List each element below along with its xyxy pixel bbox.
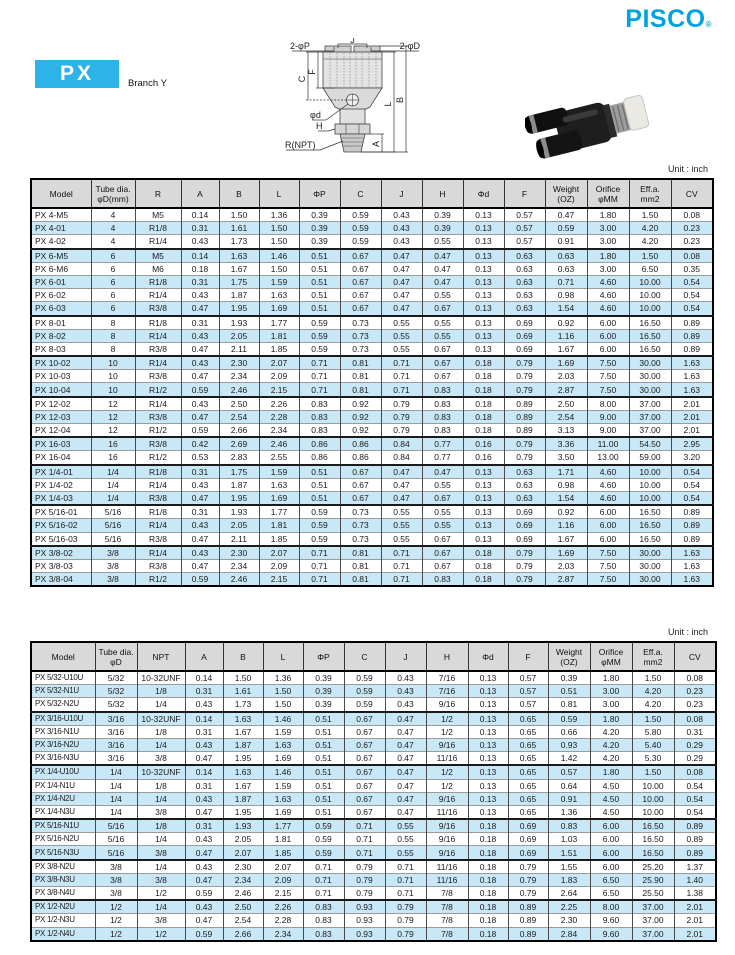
value-cell: 0.89 (508, 914, 548, 927)
value-cell: R1/4 (135, 289, 181, 302)
value-cell: 2.26 (259, 397, 299, 411)
value-cell: 0.43 (181, 356, 219, 370)
value-cell: 0.71 (381, 573, 422, 587)
value-cell: 0.59 (303, 819, 344, 833)
value-cell: 4 (91, 235, 135, 249)
value-cell: 0.13 (463, 208, 504, 222)
value-cell: 0.65 (508, 712, 548, 726)
value-cell: 0.69 (508, 846, 548, 860)
value-cell: 3.00 (590, 685, 632, 698)
value-cell: 0.67 (340, 289, 381, 302)
value-cell: 1.50 (263, 685, 303, 698)
value-cell: 0.67 (344, 725, 385, 738)
value-cell: 10 (91, 356, 135, 370)
table-row: PX 5/16-N2U5/161/40.432.051.810.590.710.… (31, 833, 716, 846)
table-row: PX 12-0312R3/80.472.542.280.830.920.790.… (31, 410, 713, 423)
value-cell: 1/4 (95, 765, 137, 779)
value-cell: 3/8 (137, 873, 185, 886)
column-header: Model (31, 642, 95, 671)
table-row: PX 3/16-U10U3/1610-32UNF0.141.631.460.51… (31, 712, 716, 726)
value-cell: 10.00 (632, 792, 674, 805)
value-cell: 0.63 (504, 478, 545, 491)
value-cell: R3/8 (135, 302, 181, 316)
table-row: PX 3/8-043/8R1/20.592.462.150.710.810.71… (31, 573, 713, 587)
value-cell: 0.51 (303, 725, 344, 738)
value-cell: 0.81 (340, 573, 381, 587)
value-cell: 0.55 (422, 519, 463, 532)
value-cell: 0.47 (385, 805, 426, 819)
value-cell: 3.50 (545, 451, 587, 465)
value-cell: 5/16 (95, 819, 137, 833)
value-cell: 3/8 (91, 559, 135, 572)
value-cell: 7.50 (587, 559, 629, 572)
value-cell: 0.51 (299, 275, 340, 288)
value-cell: 30.00 (629, 559, 671, 572)
value-cell: 6 (91, 262, 135, 275)
value-cell: 1.69 (545, 356, 587, 370)
model-cell: PX 6-02 (31, 289, 91, 302)
value-cell: 0.57 (504, 222, 545, 235)
value-cell: R1/4 (135, 519, 181, 532)
value-cell: 1.37 (674, 860, 716, 874)
value-cell: 1/4 (137, 833, 185, 846)
value-cell: 9/16 (426, 792, 468, 805)
value-cell: 0.69 (504, 316, 545, 330)
value-cell: 10.00 (629, 478, 671, 491)
value-cell: 6.00 (587, 316, 629, 330)
value-cell: 1.93 (219, 316, 259, 330)
value-cell: 0.55 (422, 316, 463, 330)
value-cell: 0.13 (468, 738, 508, 751)
model-cell: PX 12-02 (31, 397, 91, 411)
value-cell: 0.59 (299, 519, 340, 532)
value-cell: 0.43 (185, 860, 223, 874)
model-cell: PX 12-04 (31, 424, 91, 438)
value-cell: 25.50 (632, 887, 674, 901)
value-cell: 0.71 (545, 275, 587, 288)
series-name: Branch Y (128, 78, 167, 89)
value-cell: 9/16 (426, 846, 468, 860)
value-cell: 0.51 (299, 289, 340, 302)
value-cell: 0.31 (181, 505, 219, 519)
value-cell: 0.71 (299, 573, 340, 587)
value-cell: 0.65 (508, 725, 548, 738)
value-cell: 0.18 (463, 559, 504, 572)
value-cell: 3/16 (95, 738, 137, 751)
value-cell: 10.00 (629, 275, 671, 288)
value-cell: 0.08 (674, 765, 716, 779)
unit-label: Unit : inch (500, 627, 708, 637)
value-cell: 0.84 (381, 437, 422, 451)
value-cell: 0.51 (303, 779, 344, 792)
value-cell: 2.55 (259, 451, 299, 465)
model-cell: PX 1/4-N1U (31, 779, 95, 792)
table-row: PX 3/16-N3U3/163/80.471.951.690.510.670.… (31, 752, 716, 766)
column-header: J (385, 642, 426, 671)
value-cell: 10.00 (629, 302, 671, 316)
value-cell: 1.69 (259, 302, 299, 316)
value-cell: 0.59 (299, 329, 340, 342)
value-cell: 0.55 (422, 289, 463, 302)
table-row: PX 5/16-015/16R1/80.311.931.770.590.730.… (31, 505, 713, 519)
value-cell: 0.93 (344, 914, 385, 927)
value-cell: 0.43 (181, 329, 219, 342)
value-cell: 0.92 (340, 397, 381, 411)
value-cell: 0.67 (422, 491, 463, 505)
value-cell: 0.51 (303, 792, 344, 805)
value-cell: R1/4 (135, 329, 181, 342)
value-cell: 30.00 (629, 370, 671, 383)
value-cell: 0.84 (381, 451, 422, 465)
value-cell: 0.13 (463, 342, 504, 356)
model-cell: PX 1/4-03 (31, 491, 91, 505)
value-cell: 2.50 (545, 397, 587, 411)
value-cell: 13.00 (587, 451, 629, 465)
model-cell: PX 1/4-02 (31, 478, 91, 491)
value-cell: R1/4 (135, 356, 181, 370)
value-cell: 11/16 (426, 752, 468, 766)
value-cell: R1/4 (135, 478, 181, 491)
value-cell: 2.05 (219, 519, 259, 532)
value-cell: 0.98 (545, 478, 587, 491)
value-cell: 0.14 (181, 208, 219, 222)
value-cell: 0.55 (381, 342, 422, 356)
value-cell: 0.67 (340, 249, 381, 263)
value-cell: 1.71 (545, 465, 587, 479)
value-cell: 0.67 (422, 342, 463, 356)
series-code: PX (60, 62, 94, 86)
dim-label-a: A (371, 141, 381, 147)
value-cell: 1.75 (219, 465, 259, 479)
table-row: PX 3/8-N4U3/81/20.592.462.150.710.790.71… (31, 887, 716, 901)
value-cell: 0.67 (422, 302, 463, 316)
value-cell: 0.93 (344, 927, 385, 941)
value-cell: 10 (91, 383, 135, 397)
value-cell: 0.67 (422, 532, 463, 546)
model-cell: PX 4-M5 (31, 208, 91, 222)
value-cell: 0.57 (508, 685, 548, 698)
value-cell: 0.47 (181, 559, 219, 572)
value-cell: 0.79 (504, 356, 545, 370)
dim-label-phid: φd (310, 110, 321, 120)
column-header: F (508, 642, 548, 671)
value-cell: 0.51 (303, 738, 344, 751)
value-cell: 2.46 (219, 573, 259, 587)
series-badge: PX (35, 60, 119, 88)
value-cell: 0.47 (181, 491, 219, 505)
value-cell: R1/8 (135, 316, 181, 330)
value-cell: 0.65 (508, 752, 548, 766)
value-cell: 0.71 (303, 860, 344, 874)
value-cell: 0.59 (344, 685, 385, 698)
table-row: PX 3/8-N2U3/81/40.432.302.070.710.790.71… (31, 860, 716, 874)
value-cell: 0.71 (299, 383, 340, 397)
value-cell: 0.47 (422, 262, 463, 275)
value-cell: 0.79 (508, 887, 548, 901)
column-header: Weight (OZ) (545, 179, 587, 208)
product-photo (525, 88, 655, 171)
value-cell: 0.13 (463, 249, 504, 263)
value-cell: 1.50 (259, 235, 299, 249)
value-cell: 1.93 (219, 505, 259, 519)
table-row: PX 5/32-N1U5/321/80.311.611.500.390.590.… (31, 685, 716, 698)
value-cell: 0.83 (303, 927, 344, 941)
value-cell: 1.95 (223, 752, 263, 766)
value-cell: 37.00 (629, 397, 671, 411)
value-cell: 0.13 (463, 329, 504, 342)
value-cell: 0.18 (181, 262, 219, 275)
value-cell: 9/16 (426, 738, 468, 751)
value-cell: 0.55 (385, 833, 426, 846)
value-cell: 0.39 (299, 222, 340, 235)
value-cell: 0.73 (340, 519, 381, 532)
value-cell: 0.59 (181, 573, 219, 587)
value-cell: 0.43 (185, 698, 223, 712)
value-cell: 2.07 (223, 846, 263, 860)
value-cell: 2.15 (259, 573, 299, 587)
value-cell: 3/8 (91, 573, 135, 587)
value-cell: 1.46 (259, 249, 299, 263)
value-cell: 2.95 (671, 437, 713, 451)
value-cell: 0.59 (299, 505, 340, 519)
value-cell: 2.34 (223, 873, 263, 886)
model-cell: PX 8-01 (31, 316, 91, 330)
spec-table-metric: ModelTube dia. φD(mm)RABLΦPCJHΦdFWeight … (30, 178, 714, 587)
value-cell: 1.63 (223, 712, 263, 726)
value-cell: 0.31 (185, 779, 223, 792)
value-cell: 3/8 (95, 887, 137, 901)
value-cell: 11.00 (587, 437, 629, 451)
value-cell: 1.59 (263, 725, 303, 738)
value-cell: 0.81 (340, 546, 381, 560)
value-cell: 0.65 (508, 779, 548, 792)
value-cell: 2.01 (674, 927, 716, 941)
value-cell: 1.59 (263, 779, 303, 792)
value-cell: 0.47 (381, 289, 422, 302)
value-cell: 0.47 (545, 208, 587, 222)
value-cell: 0.63 (504, 465, 545, 479)
model-cell: PX 12-03 (31, 410, 91, 423)
value-cell: 1.75 (219, 275, 259, 288)
value-cell: 10.00 (629, 491, 671, 505)
value-cell: 0.13 (463, 302, 504, 316)
value-cell: 0.13 (463, 465, 504, 479)
value-cell: 0.89 (504, 397, 545, 411)
value-cell: 0.51 (303, 805, 344, 819)
value-cell: 0.13 (468, 698, 508, 712)
value-cell: 2.30 (548, 914, 590, 927)
value-cell: 0.65 (508, 738, 548, 751)
value-cell: 0.14 (181, 249, 219, 263)
column-header: Eff.a. mm2 (632, 642, 674, 671)
value-cell: 0.73 (340, 505, 381, 519)
value-cell: 0.59 (545, 222, 587, 235)
value-cell: 0.47 (385, 792, 426, 805)
value-cell: 1.80 (590, 671, 632, 685)
model-cell: PX 16-04 (31, 451, 91, 465)
value-cell: 4.60 (587, 478, 629, 491)
value-cell: 0.59 (299, 532, 340, 546)
model-cell: PX 4-02 (31, 235, 91, 249)
value-cell: 30.00 (629, 383, 671, 397)
value-cell: 6.50 (590, 887, 632, 901)
value-cell: 1.63 (671, 383, 713, 397)
value-cell: 1/8 (137, 779, 185, 792)
value-cell: 1.73 (223, 698, 263, 712)
value-cell: 4.60 (587, 302, 629, 316)
value-cell: 0.79 (508, 873, 548, 886)
value-cell: 0.83 (299, 410, 340, 423)
value-cell: 0.79 (344, 873, 385, 886)
value-cell: 6.00 (587, 342, 629, 356)
value-cell: 0.31 (181, 465, 219, 479)
value-cell: 0.63 (504, 275, 545, 288)
table-row: PX 5/16-025/16R1/40.432.051.810.590.730.… (31, 519, 713, 532)
value-cell: 0.89 (671, 316, 713, 330)
model-cell: PX 3/8-04 (31, 573, 91, 587)
value-cell: 0.51 (299, 465, 340, 479)
table-row: PX 1/2-N4U1/21/20.592.662.340.830.930.79… (31, 927, 716, 941)
value-cell: 16 (91, 451, 135, 465)
value-cell: 7.50 (587, 370, 629, 383)
value-cell: 0.39 (303, 698, 344, 712)
value-cell: 16 (91, 437, 135, 451)
model-cell: PX 3/8-03 (31, 559, 91, 572)
value-cell: 0.89 (504, 424, 545, 438)
value-cell: 0.54 (671, 289, 713, 302)
value-cell: 0.47 (381, 262, 422, 275)
column-header: B (223, 642, 263, 671)
value-cell: 0.47 (385, 725, 426, 738)
value-cell: 1.69 (263, 752, 303, 766)
value-cell: 0.13 (468, 685, 508, 698)
value-cell: 0.57 (504, 208, 545, 222)
value-cell: 1.80 (590, 765, 632, 779)
value-cell: 0.59 (344, 698, 385, 712)
value-cell: 0.39 (299, 235, 340, 249)
dim-label-f: F (307, 69, 317, 75)
value-cell: M5 (135, 249, 181, 263)
table-row: PX 1/2-N2U1/21/40.432.502.260.830.930.79… (31, 900, 716, 914)
value-cell: 4.20 (629, 235, 671, 249)
value-cell: 2.34 (263, 927, 303, 941)
value-cell: 0.71 (381, 356, 422, 370)
value-cell: 8 (91, 342, 135, 356)
value-cell: 5.30 (632, 752, 674, 766)
value-cell: 0.18 (463, 370, 504, 383)
value-cell: 1/2 (95, 900, 137, 914)
value-cell: 1.63 (671, 559, 713, 572)
value-cell: 2.30 (219, 356, 259, 370)
value-cell: 16.50 (629, 329, 671, 342)
value-cell: 6 (91, 302, 135, 316)
value-cell: 0.14 (185, 712, 223, 726)
value-cell: 12 (91, 397, 135, 411)
value-cell: 0.83 (299, 397, 340, 411)
value-cell: R1/4 (135, 235, 181, 249)
value-cell: 0.13 (463, 505, 504, 519)
value-cell: 0.79 (504, 383, 545, 397)
column-header: CV (674, 642, 716, 671)
value-cell: 12 (91, 410, 135, 423)
value-cell: 0.31 (185, 725, 223, 738)
column-header: Φd (463, 179, 504, 208)
value-cell: R3/8 (135, 437, 181, 451)
value-cell: 0.57 (508, 698, 548, 712)
value-cell: 0.69 (504, 342, 545, 356)
value-cell: 0.92 (340, 410, 381, 423)
value-cell: 6.00 (590, 833, 632, 846)
value-cell: 3/16 (95, 712, 137, 726)
value-cell: 0.18 (463, 573, 504, 587)
unit-label: Unit : inch (500, 164, 708, 174)
model-cell: PX 5/32-U10U (31, 671, 95, 685)
model-cell: PX 10-02 (31, 356, 91, 370)
dim-label-j: J (350, 38, 355, 45)
value-cell: 0.83 (422, 573, 463, 587)
value-cell: 0.13 (463, 519, 504, 532)
value-cell: 4.60 (587, 289, 629, 302)
value-cell: 1.59 (259, 465, 299, 479)
pisco-logo: PISCO® (600, 5, 712, 34)
value-cell: 5/16 (95, 846, 137, 860)
table-row: PX 3/8-033/8R3/80.472.342.090.710.810.71… (31, 559, 713, 572)
value-cell: 1.50 (219, 208, 259, 222)
value-cell: 1/2 (95, 927, 137, 941)
value-cell: 0.83 (303, 900, 344, 914)
value-cell: 1.77 (259, 505, 299, 519)
value-cell: 2.05 (223, 833, 263, 846)
value-cell: R1/4 (135, 546, 181, 560)
value-cell: 2.28 (263, 914, 303, 927)
value-cell: 1.50 (632, 712, 674, 726)
value-cell: 16.50 (629, 505, 671, 519)
value-cell: 0.67 (344, 792, 385, 805)
value-cell: 0.47 (385, 738, 426, 751)
value-cell: 2.09 (259, 370, 299, 383)
value-cell: 1.81 (259, 519, 299, 532)
value-cell: 6.50 (629, 262, 671, 275)
table-row: PX 12-0412R1/20.592.662.340.830.920.790.… (31, 424, 713, 438)
value-cell: 6.00 (587, 519, 629, 532)
value-cell: 0.18 (463, 410, 504, 423)
value-cell: 2.03 (545, 559, 587, 572)
value-cell: 0.59 (303, 846, 344, 860)
value-cell: 0.18 (468, 860, 508, 874)
column-header: Eff.a. mm2 (629, 179, 671, 208)
value-cell: 3.36 (545, 437, 587, 451)
value-cell: 5/32 (95, 685, 137, 698)
value-cell: 0.31 (181, 275, 219, 288)
value-cell: 0.71 (385, 873, 426, 886)
value-cell: 0.69 (508, 819, 548, 833)
model-cell: PX 1/2-N3U (31, 914, 95, 927)
value-cell: 0.81 (340, 559, 381, 572)
value-cell: 7.50 (587, 356, 629, 370)
value-cell: R1/2 (135, 451, 181, 465)
value-cell: 0.79 (504, 437, 545, 451)
value-cell: 0.13 (463, 491, 504, 505)
value-cell: 1.67 (223, 779, 263, 792)
value-cell: 1.50 (259, 262, 299, 275)
value-cell: 4.20 (629, 222, 671, 235)
value-cell: 10-32UNF (137, 671, 185, 685)
value-cell: 4.20 (632, 698, 674, 712)
value-cell: 2.34 (219, 370, 259, 383)
value-cell: 9.00 (587, 424, 629, 438)
value-cell: 4.20 (590, 738, 632, 751)
value-cell: 0.47 (422, 465, 463, 479)
